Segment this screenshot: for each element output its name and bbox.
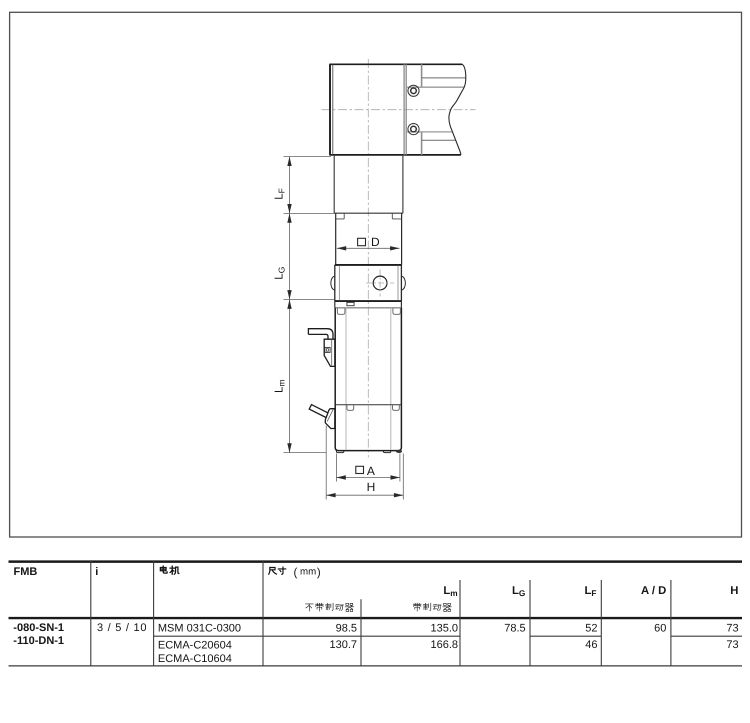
svg-text:73: 73 [726,639,738,651]
svg-text:ECMA-C20604: ECMA-C20604 [158,640,232,652]
svg-text:73: 73 [726,623,738,635]
svg-text:MSM 031C-0300: MSM 031C-0300 [158,622,241,634]
svg-text:130.7: 130.7 [329,639,357,651]
svg-text:): ) [317,567,321,579]
svg-text:-110-DN-1: -110-DN-1 [13,635,64,647]
svg-text:98.5: 98.5 [336,623,357,635]
svg-text:A / D: A / D [641,585,666,597]
svg-text:FMB: FMB [14,566,38,578]
svg-text:135.0: 135.0 [430,623,458,635]
svg-text:H: H [367,480,376,494]
svg-text:3 / 5 / 10: 3 / 5 / 10 [97,622,147,634]
svg-text:LF: LF [585,585,597,598]
svg-text:52: 52 [585,623,597,635]
svg-text:D: D [371,235,380,249]
svg-text:-080-SN-1: -080-SN-1 [13,622,64,634]
svg-text:60: 60 [654,623,666,635]
svg-text:46: 46 [585,639,597,651]
svg-text:mm: mm [300,567,316,578]
svg-text:Lm: Lm [443,585,457,598]
svg-text:i: i [95,566,98,578]
svg-text:LG: LG [512,585,525,598]
svg-text:78.5: 78.5 [504,623,525,635]
svg-text:A: A [367,464,375,478]
svg-text:(: ( [294,567,298,579]
svg-text:166.8: 166.8 [430,639,458,651]
svg-text:H: H [730,585,738,597]
svg-text:ECMA-C10604: ECMA-C10604 [158,653,232,665]
